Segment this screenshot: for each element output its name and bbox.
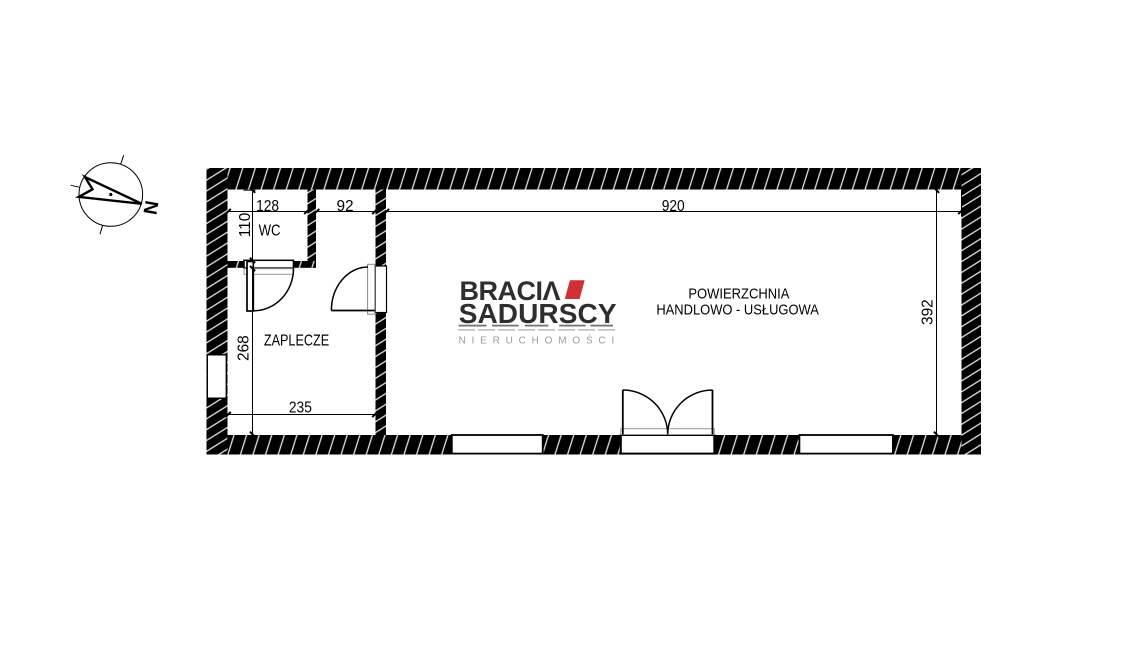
svg-text:268: 268 bbox=[236, 335, 253, 361]
svg-text:235: 235 bbox=[289, 400, 312, 417]
svg-text:HANDLOWO - USŁUGOWA: HANDLOWO - USŁUGOWA bbox=[656, 303, 819, 319]
svg-text:110: 110 bbox=[237, 213, 254, 238]
svg-text:392: 392 bbox=[919, 299, 936, 325]
svg-text:92: 92 bbox=[336, 198, 353, 215]
svg-text:WC: WC bbox=[259, 223, 281, 240]
svg-text:SADURSCY: SADURSCY bbox=[459, 298, 617, 329]
svg-text:ZAPLECZE: ZAPLECZE bbox=[264, 332, 329, 349]
svg-text:POWIERZCHNIA: POWIERZCHNIA bbox=[688, 286, 789, 302]
svg-text:NIERUCHOMOŚCI: NIERUCHOMOŚCI bbox=[459, 334, 621, 347]
svg-text:128: 128 bbox=[256, 198, 279, 215]
svg-text:920: 920 bbox=[662, 198, 685, 215]
